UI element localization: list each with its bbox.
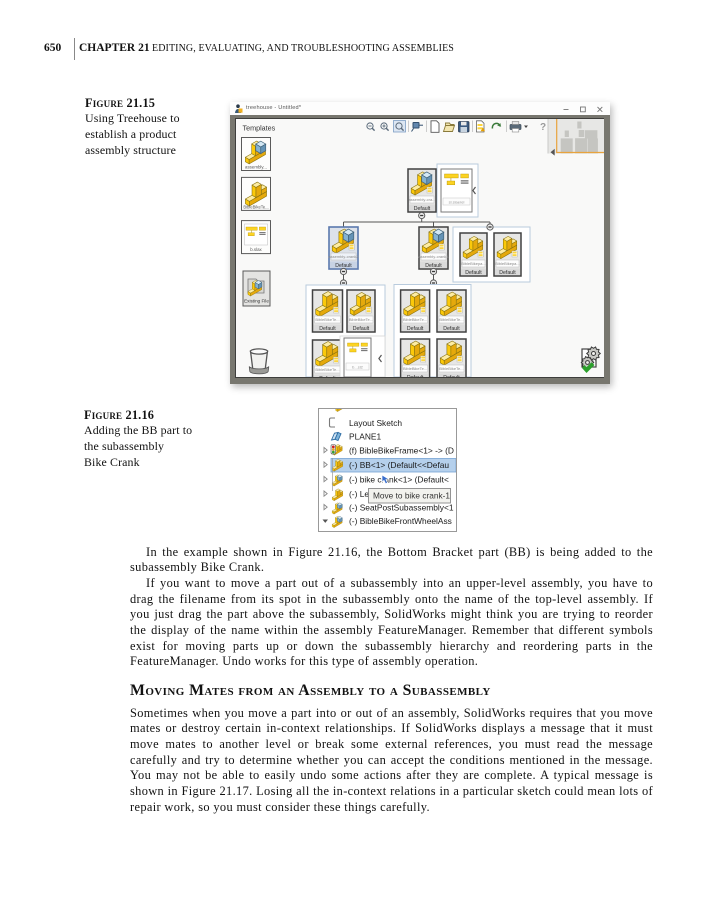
svg-text:Default: Default — [353, 326, 370, 332]
svg-text:BibleBikeTe...: BibleBikeTe... — [316, 317, 340, 322]
svg-text:Default: Default — [320, 376, 337, 377]
svg-text:?: ? — [540, 122, 546, 133]
svg-text:BibleBikeTe...: BibleBikeTe... — [403, 317, 427, 322]
svg-text:Default: Default — [500, 270, 517, 276]
svg-text:Existing File: Existing File — [244, 299, 269, 304]
svg-text:assembly-cra...: assembly-cra... — [409, 197, 436, 202]
svg-text:(-) BB<1> (Default<<Defau: (-) BB<1> (Default<<Defau — [349, 460, 449, 470]
svg-text:sl.slaerel: sl.slaerel — [449, 200, 465, 205]
svg-text:Default: Default — [414, 206, 431, 212]
svg-text:(-) BibleBikeFrontWheelAss: (-) BibleBikeFrontWheelAss — [349, 516, 452, 526]
svg-text:PLANE1: PLANE1 — [349, 432, 381, 442]
svg-text:BibleBikeTe...: BibleBikeTe... — [403, 366, 427, 371]
svg-text:Default: Default — [444, 326, 461, 332]
svg-text:assembly-crank1: assembly-crank1 — [419, 254, 450, 259]
svg-text:BibleBikeTe...: BibleBikeTe... — [440, 366, 464, 371]
svg-text:Default: Default — [336, 263, 353, 269]
svg-text:BibleBikepa...: BibleBikepa... — [496, 261, 520, 266]
svg-text:Layout Sketch: Layout Sketch — [349, 418, 402, 428]
svg-text:Default: Default — [320, 326, 337, 332]
svg-text:BibleBikeTe...: BibleBikeTe... — [316, 367, 340, 372]
svg-text:Default: Default — [426, 263, 443, 269]
svg-text:(f) BibleBikeFrame<1> -> (D: (f) BibleBikeFrame<1> -> (D — [349, 446, 454, 456]
svg-text:(-) bike crank<1> (Default<: (-) bike crank<1> (Default< — [349, 475, 449, 485]
svg-text:Templates: Templates — [243, 124, 276, 133]
svg-text:BibleBikeTe...: BibleBikeTe... — [349, 317, 373, 322]
svg-text:(-) SeatPostSubassembly<1: (-) SeatPostSubassembly<1 — [349, 503, 454, 513]
svg-text:assembly-crank2: assembly-crank2 — [329, 254, 360, 259]
svg-text:b.slax: b.slax — [251, 247, 263, 252]
svg-text:(-) Le: (-) Le — [349, 489, 369, 499]
svg-text:BibleBikeTe...: BibleBikeTe... — [244, 205, 269, 210]
svg-text:Default: Default — [407, 375, 424, 377]
svg-text:Default: Default — [407, 326, 424, 332]
svg-text:Default: Default — [466, 270, 483, 276]
svg-text:Default: Default — [444, 375, 461, 377]
svg-text:Move to bike crank-1: Move to bike crank-1 — [373, 491, 450, 501]
svg-text:BibleBikeTe...: BibleBikeTe... — [440, 317, 464, 322]
svg-text:b...sl2: b...sl2 — [352, 365, 363, 370]
svg-text:assembly...: assembly... — [245, 165, 267, 170]
svg-text:BibleBikepa...: BibleBikepa... — [462, 261, 486, 266]
